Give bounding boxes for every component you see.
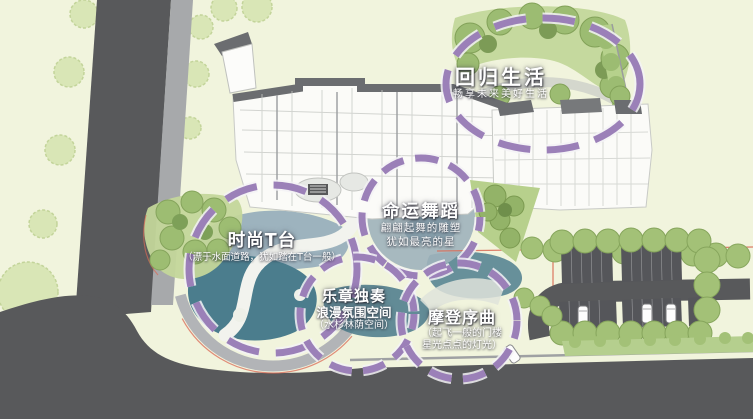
site-plan: 回归生活 畅享未来美好生活 命运舞蹈 翩翩起舞的雕塑 犹如最亮的星 时尚T台 （… xyxy=(0,0,753,419)
site-plan-drawing xyxy=(0,0,753,419)
